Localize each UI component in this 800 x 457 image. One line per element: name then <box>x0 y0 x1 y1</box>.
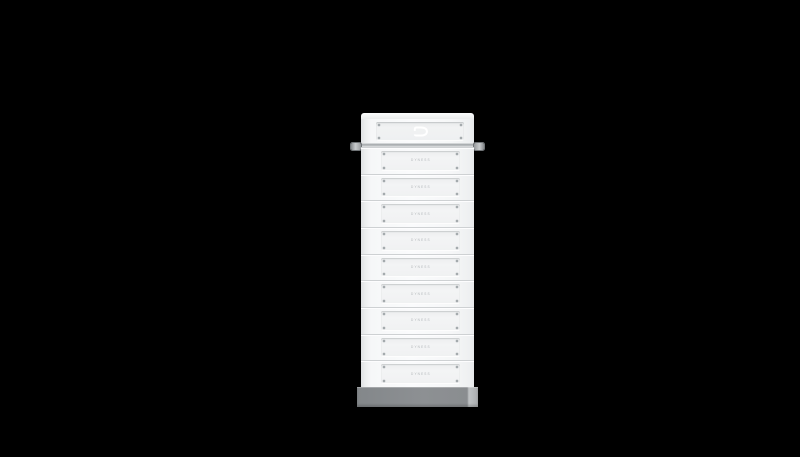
battery-module-front-panel: DYNESS <box>381 311 460 331</box>
screw-icon <box>456 327 458 329</box>
screw-icon <box>383 260 385 262</box>
right-mounting-knob-icon <box>474 143 484 150</box>
left-mounting-knob-icon <box>351 143 361 150</box>
module-label: DYNESS <box>411 266 431 269</box>
screw-icon <box>456 233 458 235</box>
battery-module-front-panel: DYNESS <box>381 204 460 224</box>
screw-icon <box>456 380 458 382</box>
screw-icon <box>378 124 380 126</box>
screw-icon <box>383 340 385 342</box>
top-module-front-panel: D <box>376 122 464 141</box>
battery-module: DYNESS <box>361 280 474 307</box>
screw-icon <box>456 180 458 182</box>
screw-icon <box>456 300 458 302</box>
screw-icon <box>383 353 385 355</box>
screw-icon <box>383 313 385 315</box>
tower-base-plinth <box>357 387 478 407</box>
screw-icon <box>456 247 458 249</box>
module-label: DYNESS <box>411 159 431 162</box>
module-label: DYNESS <box>411 293 431 296</box>
screw-icon <box>378 137 380 139</box>
screw-icon <box>456 260 458 262</box>
screw-icon <box>456 353 458 355</box>
screw-icon <box>456 273 458 275</box>
battery-tower: D DYNESS DYNESS <box>361 113 474 387</box>
screw-icon <box>456 167 458 169</box>
battery-module: DYNESS <box>361 147 474 174</box>
battery-module-front-panel: DYNESS <box>381 258 460 278</box>
screw-icon <box>383 206 385 208</box>
screw-icon <box>456 153 458 155</box>
screw-icon <box>383 366 385 368</box>
battery-module-stack: DYNESS DYNESS DYNESS DYNESS <box>361 147 474 387</box>
module-label: DYNESS <box>411 239 431 242</box>
screw-icon <box>456 206 458 208</box>
screw-icon <box>383 167 385 169</box>
screw-icon <box>383 193 385 195</box>
scene-background: D DYNESS DYNESS <box>0 0 800 457</box>
screw-icon <box>383 220 385 222</box>
module-label: DYNESS <box>411 319 431 322</box>
screw-icon <box>383 327 385 329</box>
screw-icon <box>383 380 385 382</box>
module-label: DYNESS <box>411 213 431 216</box>
battery-module: DYNESS <box>361 334 474 361</box>
top-control-module: D <box>361 119 474 143</box>
screw-icon <box>456 313 458 315</box>
battery-module-front-panel: DYNESS <box>381 178 460 198</box>
battery-module: DYNESS <box>361 254 474 281</box>
module-label: DYNESS <box>411 186 431 189</box>
battery-module: DYNESS <box>361 227 474 254</box>
screw-icon <box>383 153 385 155</box>
screw-icon <box>456 366 458 368</box>
screw-icon <box>456 340 458 342</box>
screw-icon <box>460 124 462 126</box>
battery-module-front-panel: DYNESS <box>381 364 460 384</box>
battery-module: DYNESS <box>361 174 474 201</box>
battery-module-front-panel: DYNESS <box>381 151 460 171</box>
battery-module-front-panel: DYNESS <box>381 231 460 251</box>
screw-icon <box>456 286 458 288</box>
brand-logo-d-icon: D <box>410 124 430 139</box>
screw-icon <box>383 247 385 249</box>
battery-module: DYNESS <box>361 360 474 387</box>
screw-icon <box>383 180 385 182</box>
screw-icon <box>460 137 462 139</box>
screw-icon <box>383 286 385 288</box>
module-label: DYNESS <box>411 373 431 376</box>
screw-icon <box>456 193 458 195</box>
module-label: DYNESS <box>411 346 431 349</box>
screw-icon <box>383 273 385 275</box>
battery-module: DYNESS <box>361 200 474 227</box>
screw-icon <box>383 233 385 235</box>
screw-icon <box>456 220 458 222</box>
battery-module-front-panel: DYNESS <box>381 284 460 304</box>
battery-module: DYNESS <box>361 307 474 334</box>
battery-module-front-panel: DYNESS <box>381 338 460 358</box>
screw-icon <box>383 300 385 302</box>
